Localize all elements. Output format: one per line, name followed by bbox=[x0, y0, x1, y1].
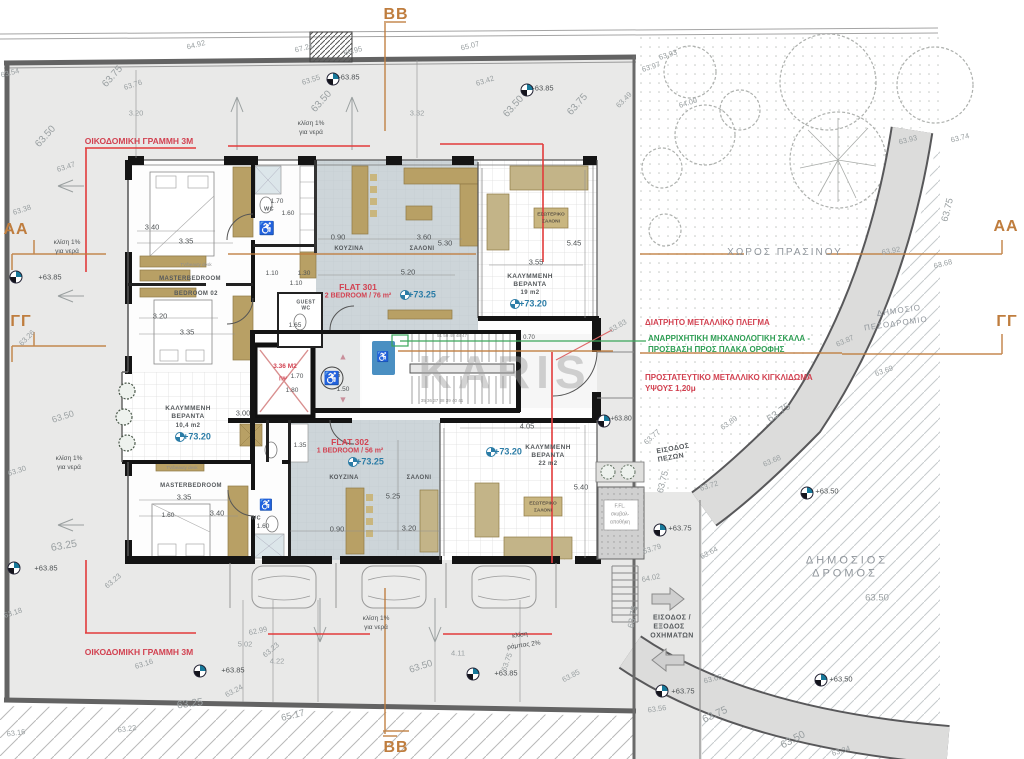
site-plan-canvas: BB BB AA AA ΓΓ ΓΓ KARISΟΙΚΟΔΟΜΙΚΗ ΓΡΑΜΜΗ… bbox=[0, 0, 1024, 759]
living-302 bbox=[290, 420, 440, 560]
parking bbox=[230, 563, 556, 608]
plan-drawing bbox=[0, 0, 1024, 759]
bottom-strip bbox=[0, 706, 634, 759]
entrance-hall bbox=[520, 334, 597, 408]
living-301 bbox=[316, 160, 478, 330]
veranda-104 bbox=[122, 372, 250, 462]
neighbor-wall-hatch bbox=[310, 32, 352, 62]
